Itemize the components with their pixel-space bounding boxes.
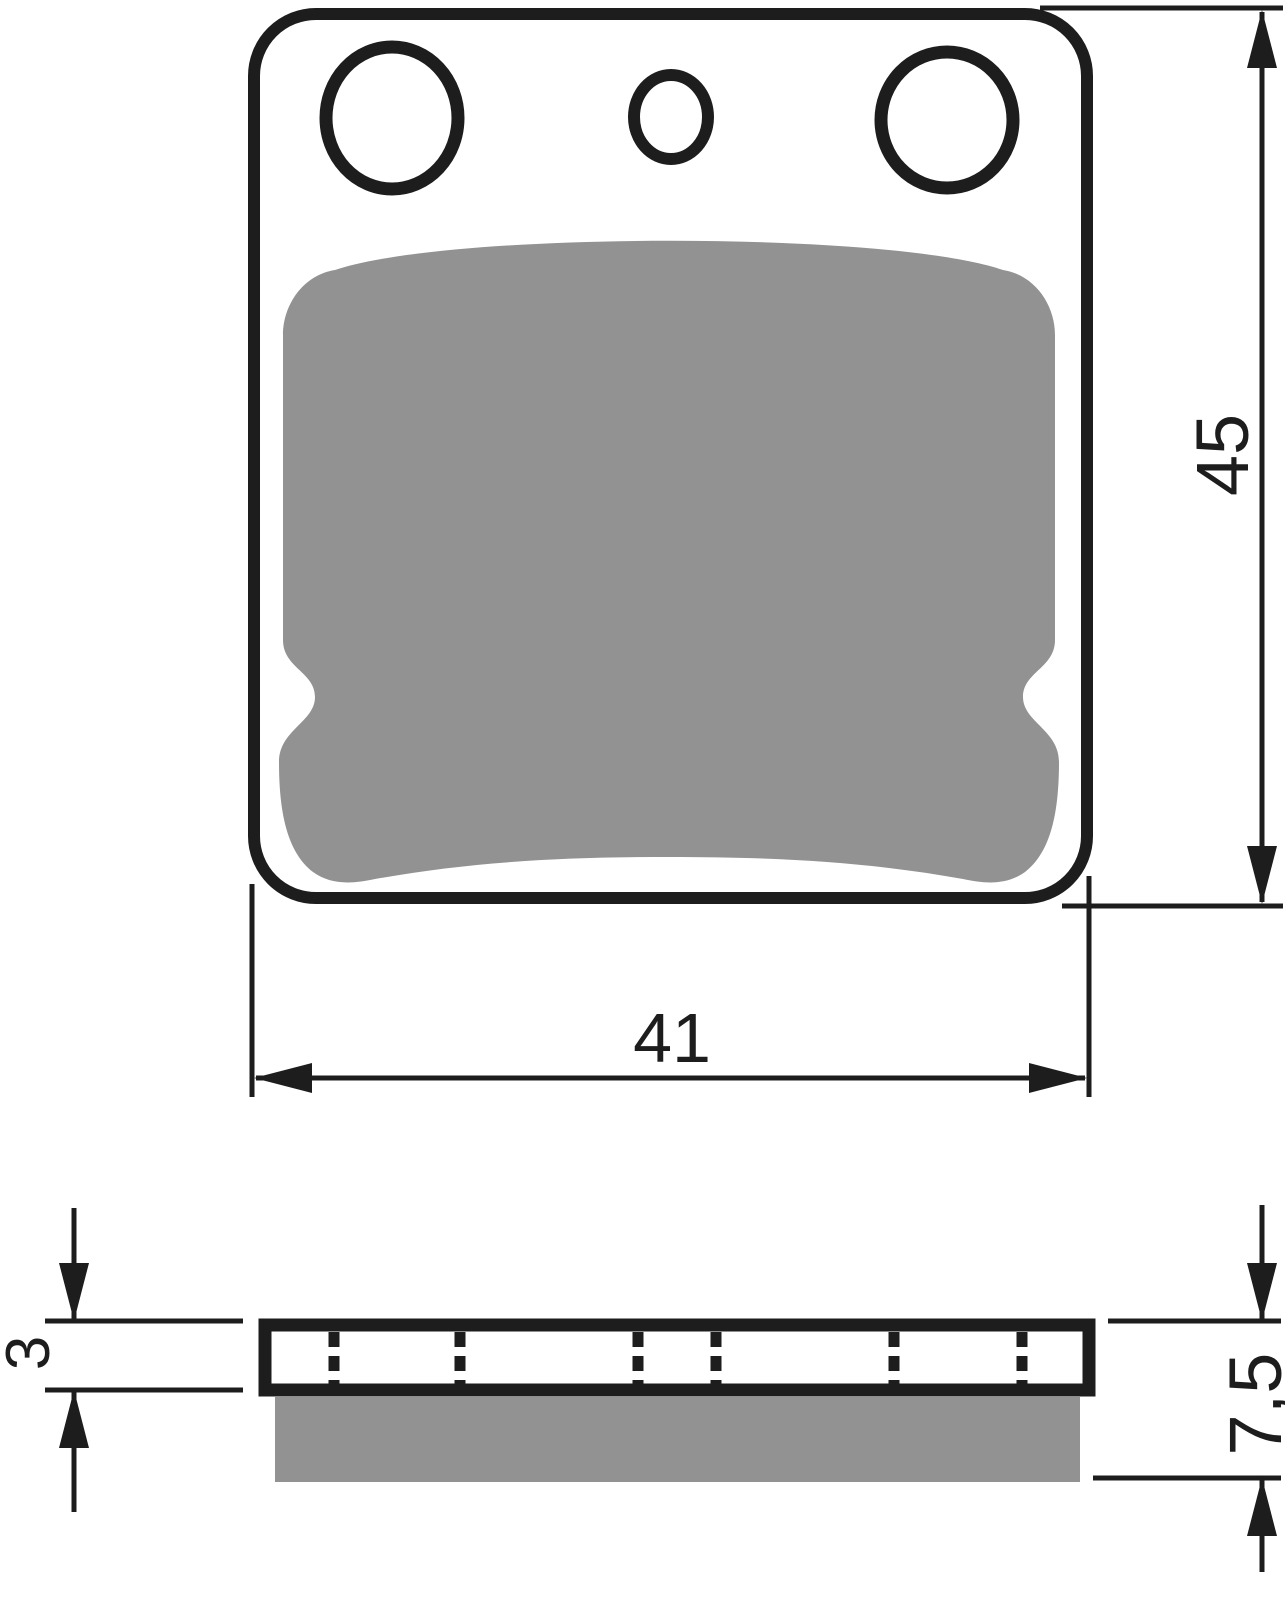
drawing-canvas: 45 41 3 — [0, 0, 1285, 1600]
height-dimension-label: 45 — [1181, 414, 1264, 496]
total-thickness-label: 7,5 — [1214, 1353, 1285, 1456]
arrowhead-down — [1247, 846, 1277, 904]
friction-pad-shape — [279, 241, 1059, 883]
brake-pad-technical-drawing: 45 41 3 — [0, 0, 1285, 1600]
dimension-backplate-3: 3 — [0, 1208, 243, 1512]
arrowhead-up — [1247, 1478, 1277, 1536]
width-dimension-label: 41 — [633, 999, 711, 1077]
arrowhead-down — [59, 1263, 89, 1321]
backplate-thickness-label: 3 — [0, 1336, 63, 1370]
dimension-width-41: 41 — [252, 876, 1089, 1097]
arrowhead-right — [1029, 1063, 1087, 1093]
side-view — [265, 1325, 1089, 1482]
arrowhead-up — [1247, 10, 1277, 68]
arrowhead-down — [1247, 1263, 1277, 1321]
arrowhead-left — [254, 1063, 312, 1093]
dimension-total-7-5: 7,5 — [1093, 1205, 1285, 1572]
backplate-side-outline — [265, 1325, 1089, 1390]
friction-pad-side-shape — [275, 1397, 1080, 1482]
arrowhead-up — [59, 1390, 89, 1448]
front-view — [254, 14, 1087, 898]
